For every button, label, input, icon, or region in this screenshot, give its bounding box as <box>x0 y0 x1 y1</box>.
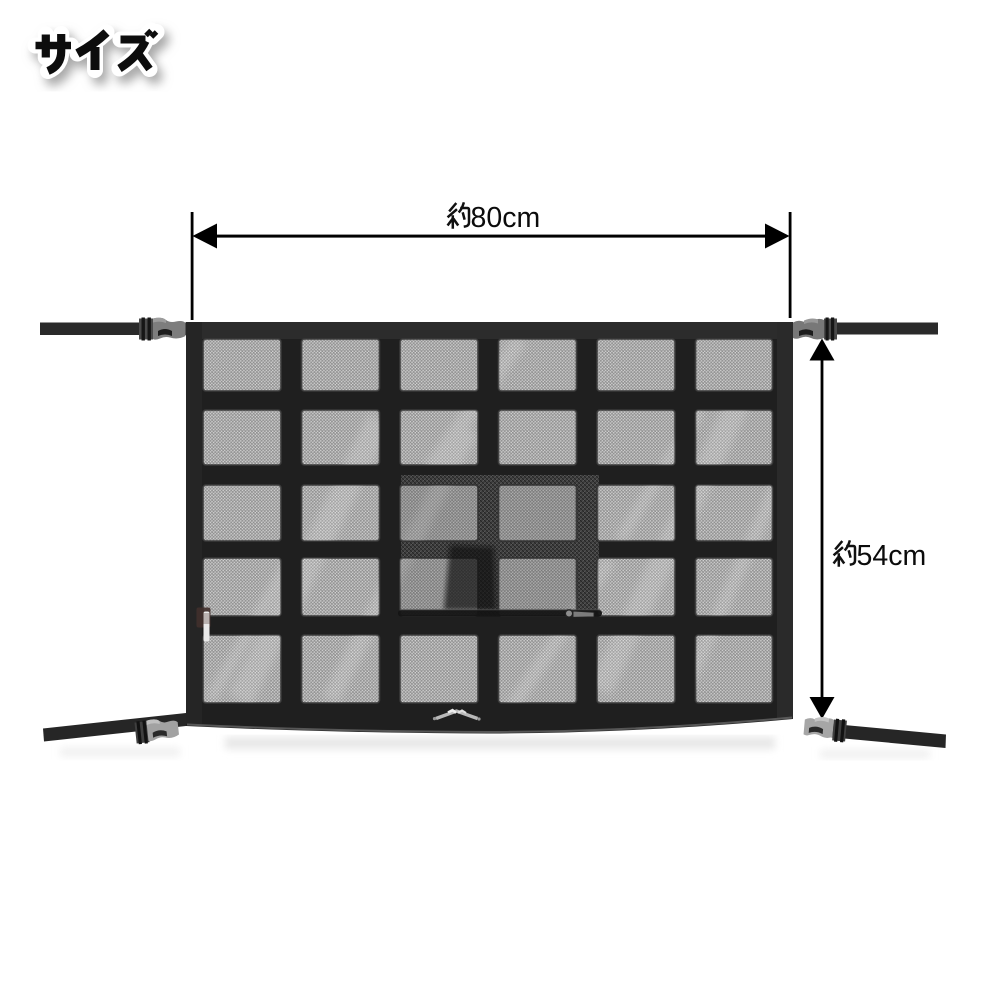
svg-text:54cm: 54cm <box>857 540 927 572</box>
svg-text:80cm: 80cm <box>471 202 541 234</box>
